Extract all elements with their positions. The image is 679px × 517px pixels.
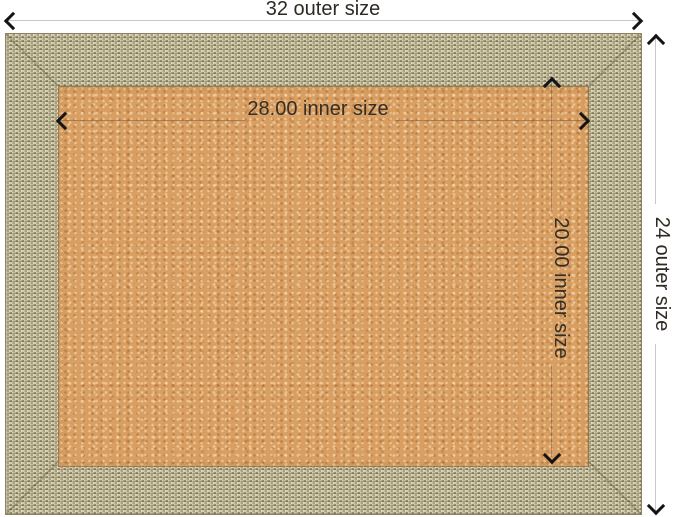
cork-surface	[58, 86, 589, 467]
inner-width-label: 28.00 inner size	[247, 98, 388, 120]
outer-height-line-bottom	[655, 344, 656, 513]
frame-miter-top-left	[6, 34, 58, 86]
arrow-down-icon	[647, 497, 665, 515]
outer-width-line	[6, 20, 641, 21]
frame-miter-top-right	[589, 34, 641, 86]
arrow-up-icon	[647, 34, 665, 52]
inner-width-line-right	[395, 120, 585, 121]
arrow-left-icon	[4, 12, 22, 30]
outer-height-label: 24 outer size	[651, 217, 673, 332]
frame-miter-bottom-right	[589, 462, 641, 514]
inner-width-line-left	[60, 120, 245, 121]
inner-height-line-bottom	[551, 365, 552, 457]
arrow-right-icon	[625, 12, 643, 30]
outer-height-line-top	[655, 36, 656, 204]
inner-height-line-top	[551, 82, 552, 210]
dimension-diagram: 32 outer size 28.00 inner size 20.00 inn…	[0, 0, 679, 517]
inner-height-label: 20.00 inner size	[550, 217, 572, 358]
frame-miter-bottom-left	[6, 462, 58, 514]
outer-width-label: 32 outer size	[266, 0, 381, 20]
